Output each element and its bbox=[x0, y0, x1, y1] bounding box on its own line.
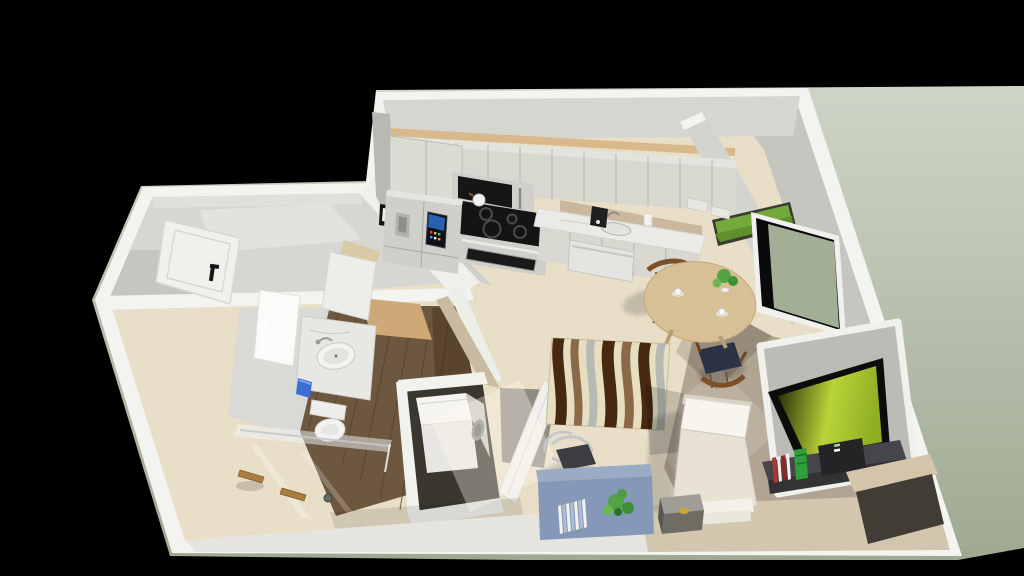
floorplan-render bbox=[0, 0, 1024, 576]
nightstand bbox=[658, 494, 704, 534]
refrigerator bbox=[382, 190, 463, 274]
fridge-screen bbox=[426, 212, 447, 248]
floor-drain bbox=[324, 494, 332, 502]
coffee-maker bbox=[590, 206, 608, 228]
desk bbox=[536, 464, 654, 540]
kettle bbox=[473, 194, 485, 206]
mirror bbox=[254, 290, 300, 366]
bathroom-door bbox=[322, 252, 376, 320]
